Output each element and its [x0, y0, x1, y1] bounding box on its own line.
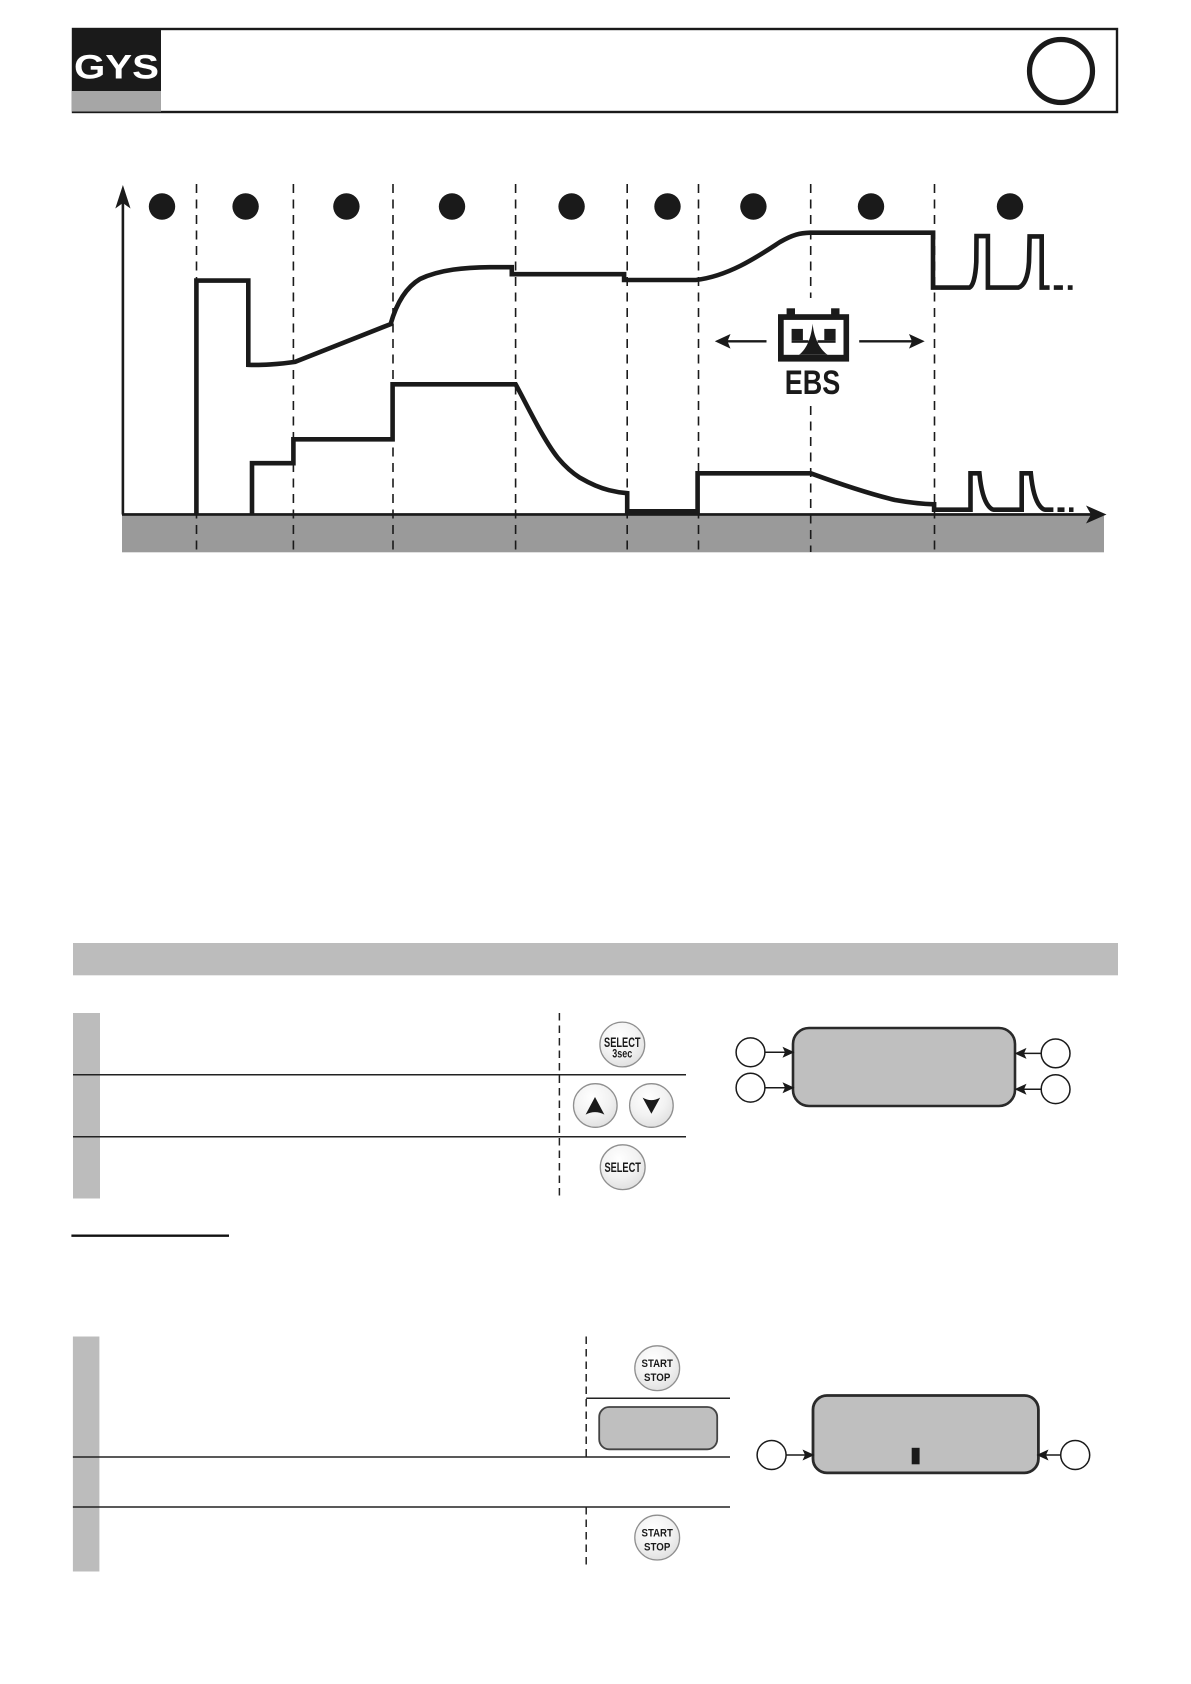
svg-text:START: START — [642, 1527, 674, 1539]
svg-text:STOP: STOP — [644, 1372, 670, 1384]
svg-text:EBS: EBS — [785, 364, 841, 402]
svg-text:3sec: 3sec — [612, 1048, 632, 1060]
svg-text:GYS: GYS — [74, 49, 159, 87]
svg-text:STOP: STOP — [644, 1541, 670, 1553]
svg-text:SELECT: SELECT — [604, 1160, 641, 1175]
svg-text:START: START — [642, 1358, 674, 1370]
